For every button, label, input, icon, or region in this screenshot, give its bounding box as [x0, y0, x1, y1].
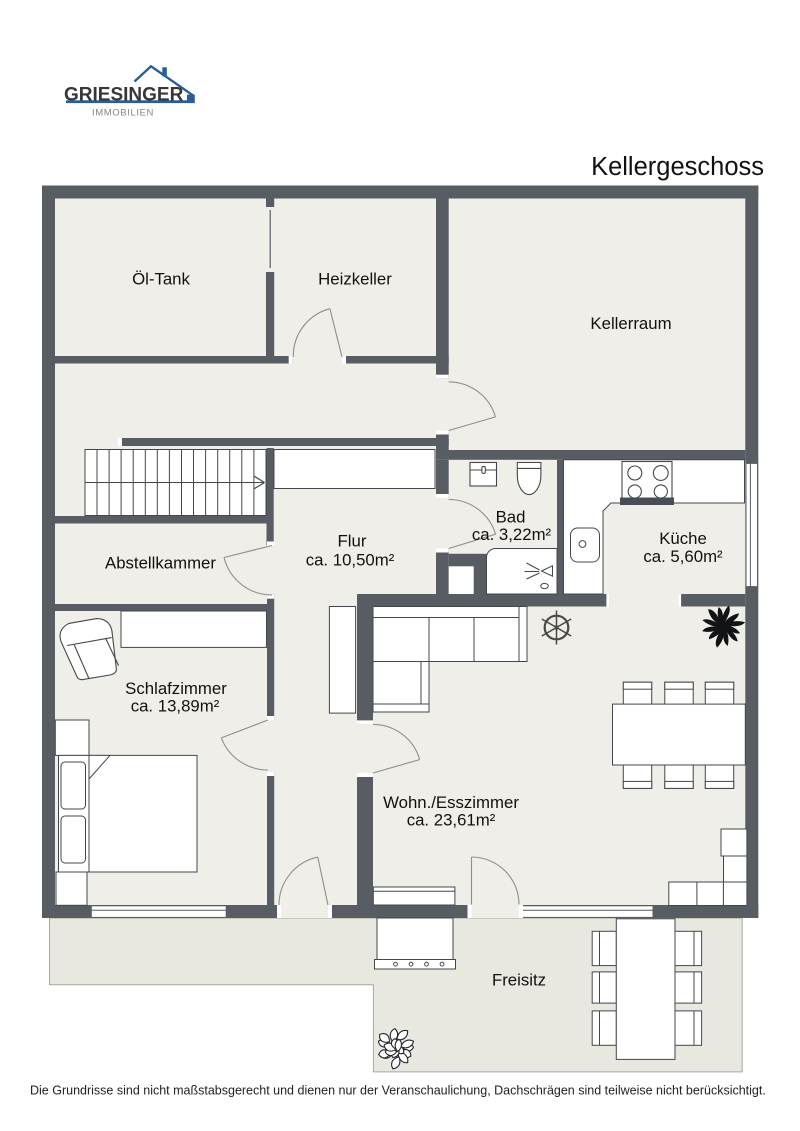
svg-text:ca. 13,89m²: ca. 13,89m² [131, 697, 220, 716]
svg-text:Schlafzimmer: Schlafzimmer [125, 679, 227, 698]
svg-text:Wohn./Esszimmer: Wohn./Esszimmer [383, 793, 519, 812]
svg-text:Bad: Bad [496, 508, 526, 527]
svg-text:IMMOBILIEN: IMMOBILIEN [92, 108, 154, 119]
svg-text:ca. 10,50m²: ca. 10,50m² [306, 551, 395, 570]
svg-text:Flur: Flur [338, 532, 367, 551]
svg-text:Heizkeller: Heizkeller [318, 270, 392, 289]
svg-text:ca. 23,61m²: ca. 23,61m² [407, 811, 496, 830]
svg-text:GRIESINGER: GRIESINGER [64, 85, 184, 106]
svg-text:Küche: Küche [659, 529, 707, 548]
svg-text:ca. 3,22m²: ca. 3,22m² [472, 525, 552, 544]
svg-text:ca. 5,60m²: ca. 5,60m² [643, 547, 723, 566]
svg-text:Die Grundrisse sind nicht maßs: Die Grundrisse sind nicht maßstabsgerech… [30, 1084, 766, 1098]
svg-text:Öl-Tank: Öl-Tank [132, 270, 190, 289]
svg-text:Kellerraum: Kellerraum [590, 314, 671, 333]
svg-text:Kellergeschoss: Kellergeschoss [591, 153, 764, 181]
svg-text:Freisitz: Freisitz [492, 971, 546, 990]
svg-text:Abstellkammer: Abstellkammer [105, 554, 216, 573]
